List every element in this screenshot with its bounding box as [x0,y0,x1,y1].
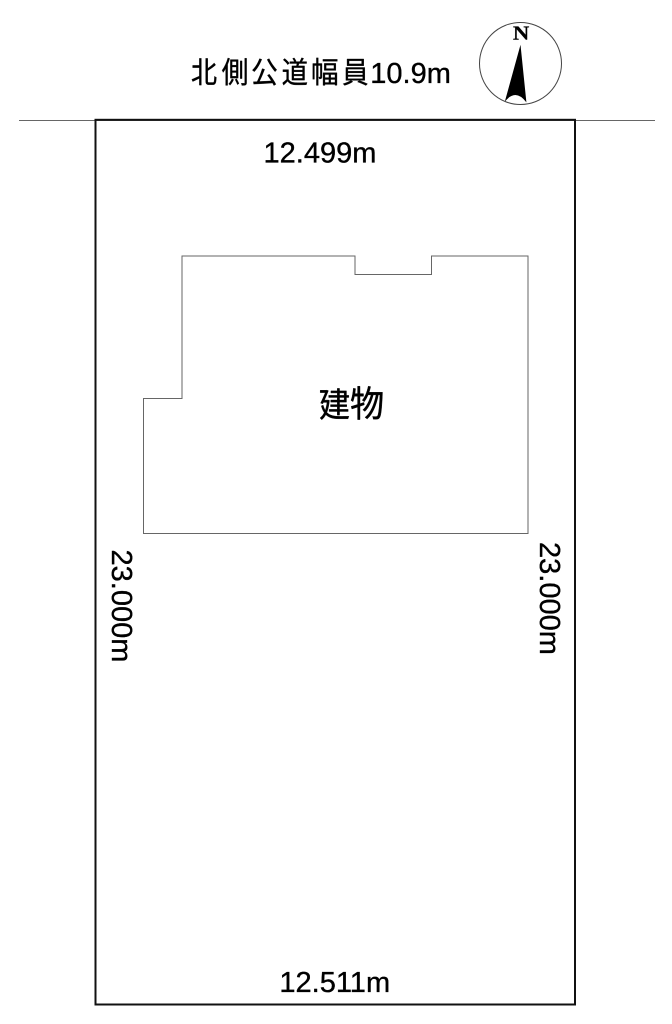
svg-text:12.499m: 12.499m [264,137,377,169]
svg-text:10.9m: 10.9m [370,58,451,90]
svg-text:23.000m: 23.000m [105,550,137,663]
svg-text:12.511m: 12.511m [279,967,390,999]
svg-text:23.000m: 23.000m [533,542,565,655]
